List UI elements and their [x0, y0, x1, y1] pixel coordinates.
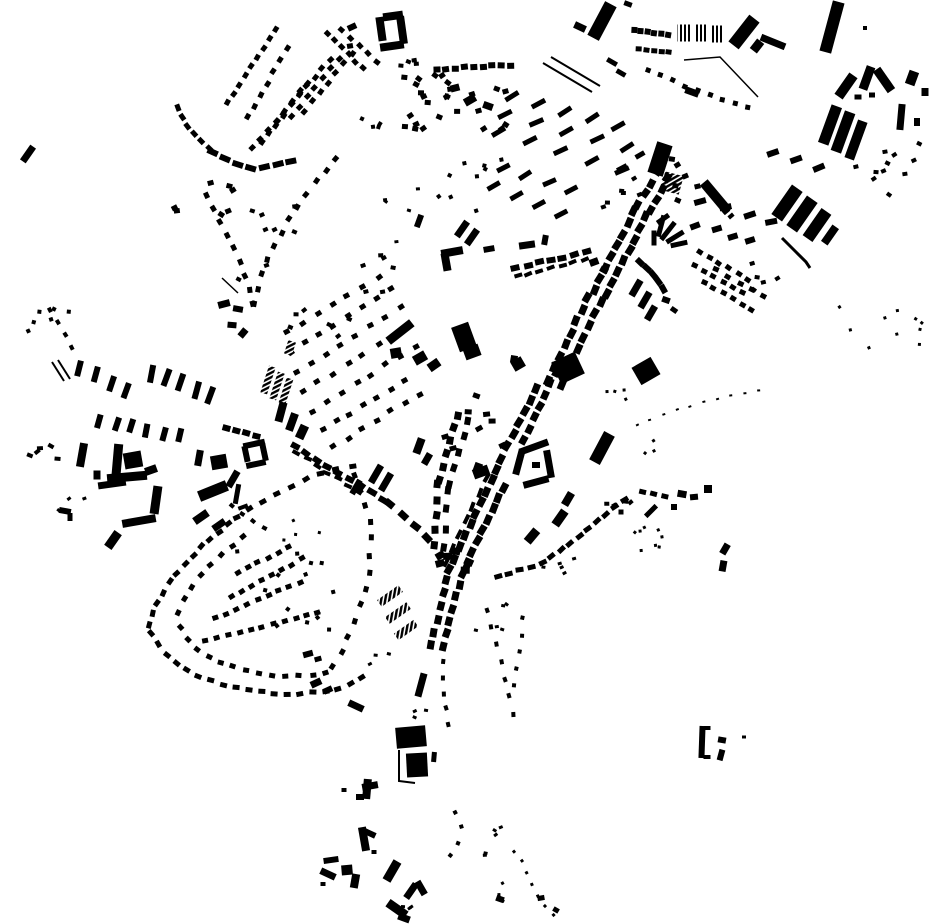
- building-footprint: [691, 262, 699, 269]
- building-footprint: [633, 530, 637, 534]
- building-footprint: [442, 692, 446, 697]
- linear-structure: [222, 278, 238, 293]
- building-footprint: [367, 372, 375, 379]
- building-footprint: [395, 725, 427, 749]
- building-footprint: [701, 279, 709, 286]
- building-footprint: [412, 709, 417, 713]
- building-footprint: [629, 234, 640, 246]
- building-footprint: [472, 534, 483, 546]
- building-footprint: [390, 265, 396, 270]
- building-footprint: [217, 659, 224, 665]
- building-footprint: [49, 317, 54, 322]
- building-footprint: [324, 30, 332, 38]
- building-footprint: [333, 417, 341, 424]
- building-footprint: [174, 104, 181, 112]
- building-footprint: [449, 422, 458, 432]
- building-footprint: [507, 63, 514, 69]
- building-footprint: [308, 359, 316, 366]
- building-footprint: [226, 183, 233, 189]
- building-footprint: [217, 551, 225, 559]
- building-footprint: [397, 303, 405, 310]
- building-footprint: [914, 317, 918, 321]
- building-footprint: [494, 573, 503, 580]
- building-footprint: [474, 628, 479, 632]
- building-footprint: [867, 346, 871, 350]
- building-footprint: [693, 197, 706, 206]
- building-footprint: [427, 358, 442, 372]
- building-footprint: [147, 364, 156, 383]
- building-footprint: [651, 48, 657, 53]
- building-footprint: [386, 407, 394, 414]
- building-footprint: [294, 312, 299, 316]
- building-footprint: [719, 560, 728, 572]
- building-footprint: [918, 328, 922, 332]
- building-footprint: [486, 180, 501, 191]
- building-footprint: [712, 266, 719, 273]
- building-footprint: [530, 411, 540, 422]
- building-footprint: [272, 160, 284, 168]
- building-footprint: [241, 272, 248, 280]
- building-footprint: [47, 307, 53, 313]
- building-footprint: [181, 595, 188, 603]
- building-footprints-layer: [20, 0, 929, 923]
- building-footprint: [224, 232, 231, 240]
- building-footprint: [543, 904, 547, 908]
- building-footprint: [331, 36, 339, 44]
- building-footprint: [498, 825, 503, 829]
- building-footprint: [483, 854, 487, 857]
- building-footprint: [657, 72, 663, 78]
- building-footprint: [646, 178, 656, 189]
- building-footprint: [568, 259, 577, 266]
- building-footprint: [334, 686, 342, 693]
- building-footprint: [192, 381, 203, 400]
- building-footprint: [265, 592, 272, 599]
- building-footprint: [905, 70, 919, 87]
- building-footprint: [197, 542, 205, 551]
- building-footprint: [284, 340, 296, 356]
- building-footprint: [499, 482, 510, 494]
- building-footprint: [235, 549, 239, 553]
- building-footprint: [150, 609, 156, 617]
- building-footprint: [489, 502, 499, 514]
- building-footprint: [301, 338, 309, 345]
- building-footprint: [623, 388, 626, 391]
- building-footprint: [605, 390, 608, 393]
- building-footprint: [411, 58, 417, 63]
- building-footprint: [849, 328, 853, 332]
- building-footprint: [352, 618, 359, 625]
- building-footprint: [224, 98, 231, 106]
- building-footprint: [323, 351, 331, 359]
- building-footprint: [559, 263, 568, 269]
- building-footprint: [520, 859, 524, 863]
- building-footprint: [258, 577, 265, 584]
- building-footprint: [580, 256, 589, 263]
- building-footprint: [381, 314, 389, 321]
- building-footprint: [219, 154, 231, 164]
- building-footprint: [373, 58, 381, 66]
- building-footprint: [259, 212, 265, 218]
- building-footprint: [678, 25, 691, 42]
- building-footprint: [615, 68, 626, 77]
- building-footprint: [339, 648, 346, 656]
- building-footprint: [654, 544, 657, 547]
- building-footprint: [512, 850, 516, 854]
- building-footprint: [74, 360, 84, 377]
- building-footprint: [381, 360, 389, 368]
- building-footprint: [619, 510, 624, 515]
- building-footprint: [194, 673, 202, 680]
- building-footprint: [309, 561, 314, 566]
- building-footprint: [412, 350, 428, 365]
- building-footprint: [342, 788, 347, 792]
- building-footprint: [561, 338, 571, 350]
- building-footprint: [269, 67, 276, 75]
- building-footprint: [239, 533, 247, 541]
- building-footprint: [465, 409, 472, 414]
- building-footprint: [573, 21, 587, 32]
- building-footprint: [297, 579, 305, 586]
- building-footprint: [676, 408, 679, 411]
- building-footprint: [264, 80, 271, 88]
- building-footprint: [727, 213, 734, 220]
- building-footprint: [652, 231, 657, 246]
- building-footprint: [433, 511, 441, 520]
- building-footprint: [460, 431, 468, 440]
- building-footprint: [224, 208, 231, 215]
- building-footprint: [634, 150, 645, 159]
- building-footprint: [702, 400, 705, 403]
- building-footprint: [436, 194, 442, 200]
- building-footprint: [217, 211, 225, 218]
- building-footprint: [227, 322, 236, 329]
- building-footprint: [625, 244, 636, 256]
- building-footprint: [303, 572, 308, 577]
- building-footprint: [220, 682, 228, 689]
- building-footprint: [513, 416, 524, 428]
- building-footprint: [508, 428, 519, 440]
- building-footprint: [502, 677, 507, 683]
- building-footprint: [207, 677, 215, 684]
- building-footprint: [484, 607, 489, 613]
- building-footprint: [662, 413, 665, 416]
- building-footprint: [374, 654, 378, 657]
- building-footprint: [183, 122, 191, 131]
- building-footprint: [498, 62, 505, 68]
- building-footprint: [425, 100, 431, 105]
- building-footprint: [288, 113, 296, 121]
- building-footprint: [704, 485, 712, 493]
- building-footprint: [258, 163, 270, 171]
- building-footprint: [260, 44, 268, 52]
- building-footprint: [327, 56, 335, 64]
- building-footprint: [222, 424, 231, 432]
- building-footprint: [480, 125, 488, 132]
- building-footprint: [621, 191, 626, 195]
- building-footprint: [303, 612, 310, 619]
- building-footprint: [265, 554, 273, 561]
- building-footprint: [273, 490, 281, 498]
- building-footprint: [394, 620, 418, 640]
- building-footprint: [430, 541, 438, 550]
- building-footprint: [444, 79, 452, 87]
- building-footprint: [669, 77, 676, 84]
- building-footprint: [660, 535, 663, 538]
- building-footprint: [834, 72, 857, 99]
- building-footprint: [217, 299, 230, 309]
- building-footprint: [257, 91, 264, 99]
- building-footprint: [284, 692, 291, 697]
- building-footprint: [450, 463, 458, 472]
- building-footprint: [233, 484, 241, 505]
- building-footprint: [744, 276, 752, 283]
- building-footprint: [624, 217, 634, 229]
- building-footprint: [502, 88, 509, 94]
- building-footprint: [412, 126, 419, 132]
- building-footprint: [819, 0, 844, 53]
- building-footprint: [644, 504, 658, 518]
- building-footprint: [575, 532, 584, 541]
- building-footprint: [882, 149, 888, 154]
- building-footprint: [518, 434, 528, 445]
- building-footprint: [350, 873, 360, 888]
- building-footprint: [210, 454, 228, 471]
- building-footprint: [677, 490, 687, 498]
- building-footprint: [290, 441, 301, 451]
- building-footprint: [344, 633, 351, 641]
- building-footprint: [310, 672, 317, 678]
- building-footprint: [884, 160, 890, 166]
- building-footprint: [447, 173, 452, 178]
- building-footprint: [637, 28, 643, 34]
- building-footprint: [302, 475, 311, 483]
- building-footprint: [282, 538, 285, 541]
- building-footprint: [853, 164, 859, 169]
- building-footprint: [159, 427, 168, 442]
- building-footprint: [232, 514, 240, 521]
- building-footprint: [918, 343, 921, 346]
- building-footprint: [252, 432, 261, 440]
- building-footprint: [309, 408, 317, 415]
- building-footprint: [273, 117, 281, 125]
- building-footprint: [402, 124, 408, 129]
- building-footprint: [295, 673, 301, 678]
- building-footprint: [483, 514, 493, 526]
- building-footprint: [496, 163, 511, 174]
- building-footprint: [873, 170, 878, 174]
- building-footprint: [294, 533, 297, 536]
- building-footprint: [244, 113, 251, 121]
- building-footprint: [442, 448, 451, 458]
- building-footprint: [310, 678, 323, 689]
- building-footprint: [285, 606, 291, 612]
- building-footprint: [351, 333, 359, 340]
- building-footprint: [250, 518, 256, 524]
- building-footprint: [319, 74, 327, 82]
- building-footprint: [414, 62, 419, 66]
- building-footprint: [345, 411, 353, 418]
- building-footprint: [123, 451, 144, 470]
- building-footprint: [532, 462, 540, 468]
- building-footprint: [706, 254, 714, 261]
- building-footprint: [213, 635, 220, 642]
- building-footprint: [524, 424, 534, 435]
- building-footprint: [584, 319, 594, 331]
- building-footprint: [869, 93, 875, 98]
- building-footprint: [327, 627, 331, 631]
- building-footprint: [444, 486, 451, 495]
- building-footprint: [594, 273, 605, 285]
- building-footprint: [329, 663, 336, 671]
- building-footprint: [448, 853, 454, 859]
- building-footprint: [177, 623, 185, 631]
- building-footprint: [661, 296, 671, 304]
- building-footprint: [552, 906, 560, 913]
- building-footprint: [175, 428, 184, 443]
- building-footprint: [184, 636, 192, 644]
- building-footprint: [261, 525, 267, 531]
- building-footprint: [247, 287, 253, 294]
- building-footprint: [436, 114, 443, 121]
- building-footprint: [241, 429, 250, 437]
- building-footprint: [313, 177, 320, 185]
- building-footprint: [527, 564, 536, 571]
- building-footprint: [863, 26, 867, 30]
- building-footprint: [462, 161, 467, 166]
- building-footprint: [299, 388, 307, 395]
- building-footprint: [886, 192, 892, 198]
- building-footprint: [582, 247, 592, 255]
- building-footprint: [719, 542, 731, 555]
- building-footprint: [409, 520, 421, 532]
- building-footprint: [759, 292, 767, 299]
- building-footprint: [531, 98, 547, 110]
- building-footprint: [325, 79, 333, 87]
- building-footprint: [359, 116, 364, 121]
- building-footprint: [230, 244, 237, 252]
- building-footprint: [709, 284, 717, 291]
- building-footprint: [367, 322, 375, 329]
- building-footprint: [293, 369, 301, 376]
- building-footprint: [644, 28, 651, 35]
- building-footprint: [356, 794, 364, 800]
- building-footprint: [322, 670, 329, 677]
- building-footprint: [356, 42, 364, 50]
- building-footprint: [204, 386, 216, 405]
- building-footprint: [281, 618, 288, 625]
- building-footprint: [707, 92, 713, 98]
- building-footprint: [610, 120, 626, 132]
- building-footprint: [319, 561, 324, 566]
- building-footprint: [363, 586, 369, 593]
- building-footprint: [605, 201, 610, 205]
- building-footprint: [589, 431, 615, 465]
- building-footprint: [301, 307, 307, 313]
- building-footprint: [62, 332, 68, 338]
- building-footprint: [739, 289, 747, 296]
- building-footprint: [506, 693, 511, 699]
- building-footprint: [492, 828, 497, 833]
- building-footprint: [504, 571, 513, 578]
- building-footprint: [302, 191, 310, 199]
- building-footprint: [896, 104, 905, 131]
- building-footprint: [150, 486, 163, 515]
- building-footprint: [452, 810, 457, 815]
- building-footprint: [648, 419, 651, 422]
- building-footprint: [375, 340, 383, 347]
- building-footprint: [512, 449, 525, 476]
- building-footprint: [448, 194, 453, 199]
- building-footprint: [601, 510, 610, 519]
- building-footprint: [248, 582, 256, 589]
- building-footprint: [760, 34, 787, 50]
- building-footprint: [631, 27, 637, 33]
- building-footprint: [511, 712, 515, 717]
- building-footprint: [443, 93, 451, 100]
- building-footprint: [661, 493, 669, 499]
- building-footprint: [546, 256, 556, 263]
- building-footprint: [363, 289, 369, 294]
- building-footprint: [572, 557, 577, 561]
- building-footprint: [292, 449, 301, 456]
- building-footprint: [377, 585, 403, 606]
- building-footprint: [385, 319, 414, 345]
- building-footprint: [337, 26, 345, 34]
- building-footprint: [546, 552, 555, 561]
- building-footprint: [291, 229, 297, 235]
- building-footprint: [732, 100, 738, 106]
- building-footprint: [454, 109, 460, 114]
- building-footprint: [704, 755, 711, 759]
- building-footprint: [378, 472, 394, 493]
- building-footprint: [439, 641, 448, 651]
- building-footprint: [480, 64, 487, 71]
- building-footprint: [172, 659, 181, 667]
- building-footprint: [296, 103, 304, 111]
- building-footprint: [427, 640, 435, 650]
- building-footprint: [385, 602, 411, 623]
- building-footprint: [451, 591, 460, 601]
- building-footprint: [583, 525, 592, 534]
- building-footprint: [335, 333, 341, 339]
- building-footprint: [194, 450, 204, 467]
- building-footprint: [735, 270, 743, 277]
- building-footprint: [542, 177, 557, 187]
- building-footprint: [332, 155, 340, 163]
- building-footprint: [613, 390, 617, 394]
- building-footprint: [349, 463, 357, 469]
- building-footprint: [455, 841, 460, 846]
- building-footprint: [431, 752, 437, 762]
- building-footprint: [405, 59, 411, 65]
- building-footprint: [259, 443, 269, 462]
- building-footprint: [244, 563, 252, 570]
- building-footprint: [651, 30, 658, 37]
- building-footprint: [891, 152, 897, 158]
- building-footprint: [245, 687, 253, 693]
- building-footprint: [837, 305, 841, 309]
- building-footprint: [474, 208, 479, 213]
- building-footprint: [745, 104, 751, 110]
- building-footprint: [292, 204, 297, 209]
- building-footprint: [388, 386, 396, 393]
- building-footprint: [279, 229, 286, 237]
- building-footprint: [916, 141, 922, 147]
- building-footprint: [197, 480, 229, 501]
- building-footprint: [589, 133, 605, 144]
- building-footprint: [546, 264, 555, 271]
